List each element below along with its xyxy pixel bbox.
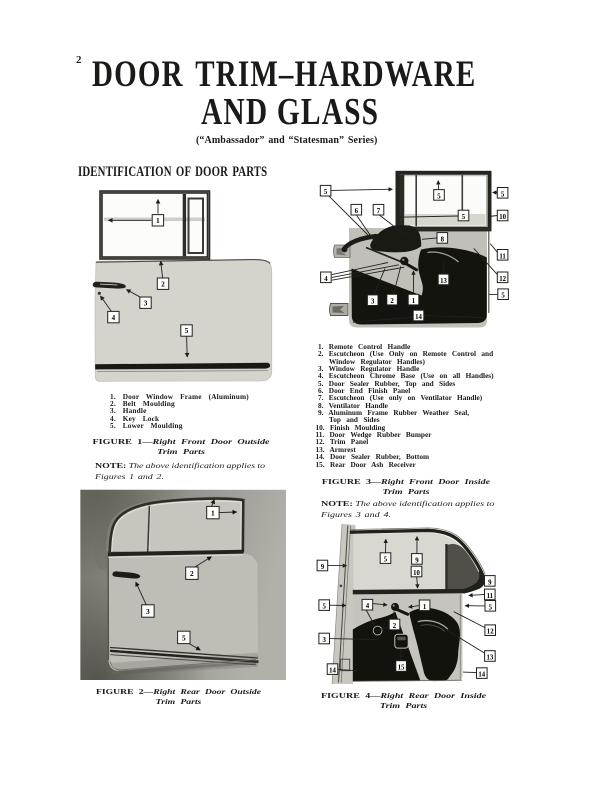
svg-text:5: 5 xyxy=(489,604,493,611)
svg-text:5: 5 xyxy=(437,193,441,200)
svg-text:5: 5 xyxy=(384,557,388,564)
svg-text:5: 5 xyxy=(462,214,466,221)
svg-text:3: 3 xyxy=(144,299,148,307)
svg-text:5: 5 xyxy=(185,327,189,335)
svg-text:4: 4 xyxy=(366,603,370,610)
svg-text:2: 2 xyxy=(161,280,165,288)
svg-text:8: 8 xyxy=(441,236,445,243)
svg-text:1: 1 xyxy=(156,217,160,225)
svg-text:10: 10 xyxy=(413,570,420,577)
svg-text:11: 11 xyxy=(487,593,494,600)
svg-text:9: 9 xyxy=(321,564,325,571)
svg-text:9: 9 xyxy=(488,579,492,586)
svg-text:15: 15 xyxy=(398,665,405,672)
svg-text:5: 5 xyxy=(501,191,505,198)
svg-text:5: 5 xyxy=(501,293,505,300)
svg-text:13: 13 xyxy=(440,278,447,285)
svg-text:2: 2 xyxy=(390,298,394,305)
svg-text:12: 12 xyxy=(499,276,506,283)
svg-text:6: 6 xyxy=(355,208,359,215)
svg-text:5: 5 xyxy=(324,189,328,196)
svg-text:13: 13 xyxy=(487,655,494,662)
svg-text:3: 3 xyxy=(371,299,375,306)
svg-text:2: 2 xyxy=(393,623,397,630)
svg-text:3: 3 xyxy=(146,607,150,616)
svg-text:7: 7 xyxy=(377,208,381,215)
svg-text:5: 5 xyxy=(182,633,186,642)
svg-text:1: 1 xyxy=(423,604,427,611)
svg-text:10: 10 xyxy=(499,214,506,221)
svg-text:14: 14 xyxy=(415,314,422,321)
svg-text:11: 11 xyxy=(499,253,506,260)
svg-text:14: 14 xyxy=(478,672,485,679)
svg-text:5: 5 xyxy=(322,604,326,611)
svg-text:12: 12 xyxy=(487,629,494,636)
svg-text:1: 1 xyxy=(211,509,215,518)
svg-text:1: 1 xyxy=(412,298,416,305)
svg-text:3: 3 xyxy=(322,637,326,644)
svg-text:4: 4 xyxy=(112,314,116,322)
svg-text:9: 9 xyxy=(415,557,419,564)
svg-text:14: 14 xyxy=(329,668,336,675)
svg-text:2: 2 xyxy=(190,569,194,578)
svg-text:4: 4 xyxy=(324,276,328,283)
